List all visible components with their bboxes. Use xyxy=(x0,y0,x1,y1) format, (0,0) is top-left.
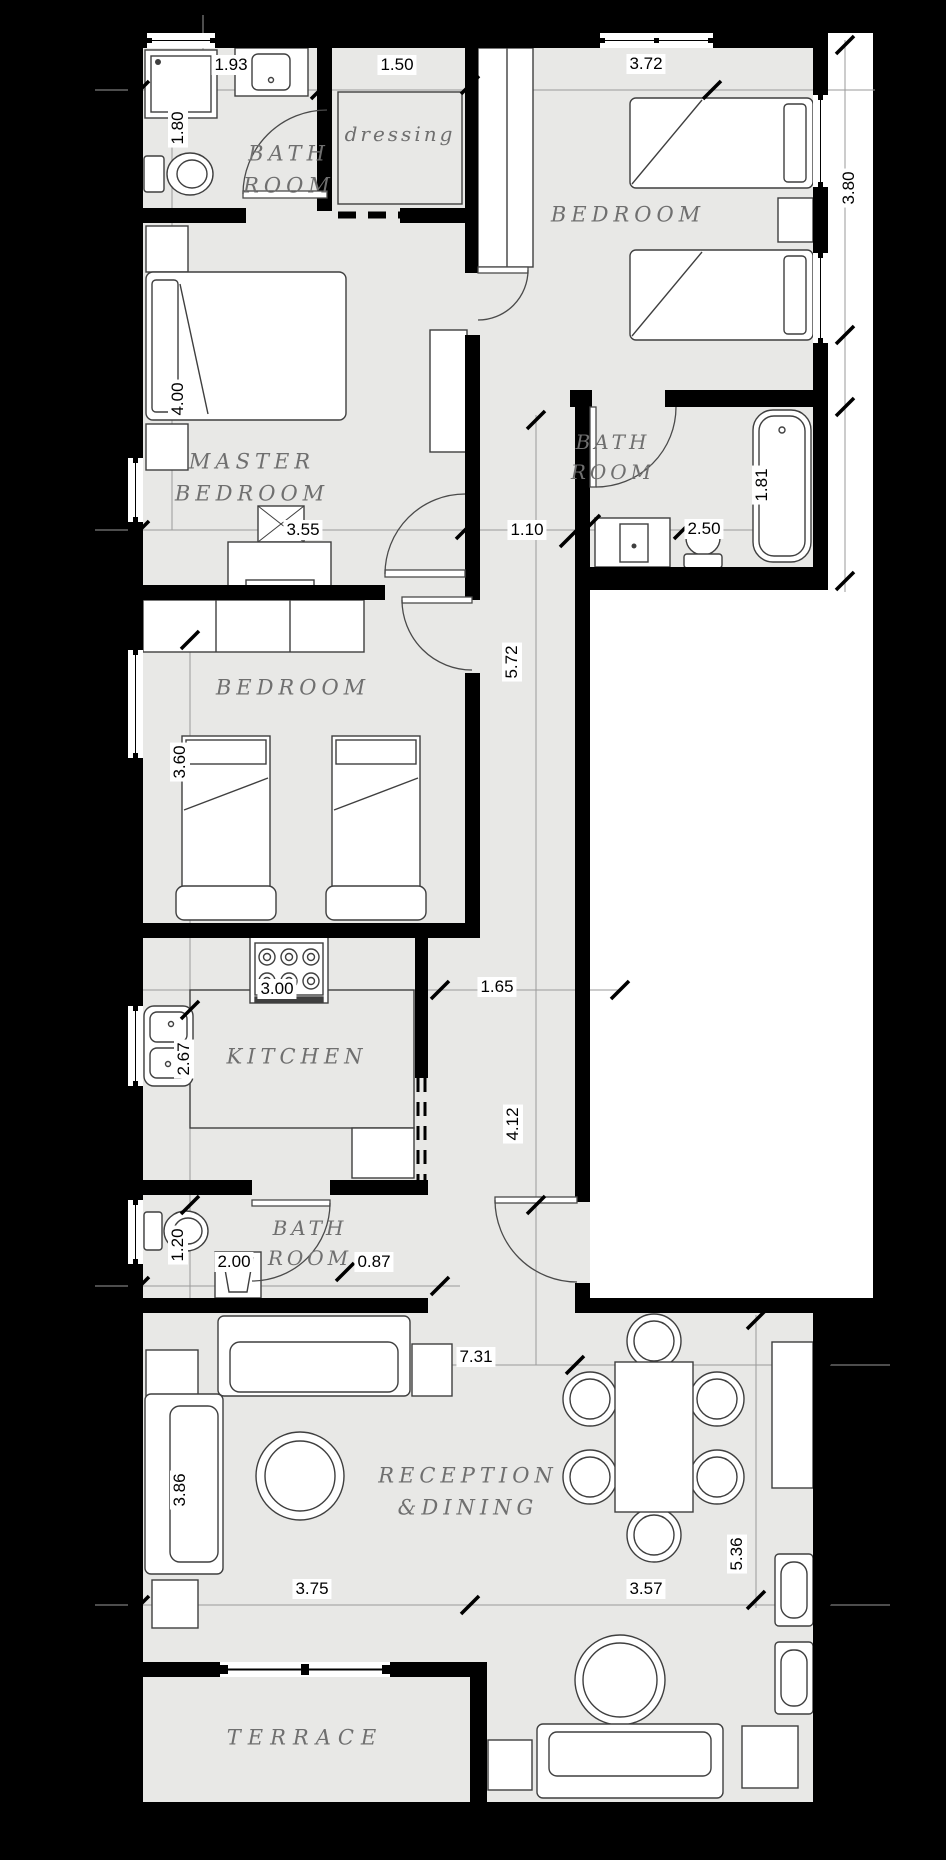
vanity-sink xyxy=(595,518,670,567)
room-label-master-bedroom: MASTERBEDROOM xyxy=(175,447,329,510)
room-label-reception: RECEPTION&DINING xyxy=(378,1461,558,1524)
window xyxy=(128,1006,143,1086)
room-label-bedroom-top: BEDROOM xyxy=(551,199,705,231)
room-label-bath-top: BATHROOM xyxy=(243,139,335,202)
terrace-railing xyxy=(220,1662,390,1677)
room-label-terrace: TERRACE xyxy=(227,1722,384,1754)
dim-dressing-width: 1.50 xyxy=(377,55,416,75)
dim-bath-lower-height: 1.20 xyxy=(168,1225,188,1264)
dim-sofa-length: 3.86 xyxy=(170,1470,190,1509)
armchair-right-1 xyxy=(775,1554,813,1626)
corner-table xyxy=(742,1726,798,1788)
dresser xyxy=(228,542,331,586)
room-label-bath-right: BATHROOM xyxy=(571,427,655,487)
dim-hall-width: 1.10 xyxy=(507,520,546,540)
floor-plan-canvas: BATHROOM dressing BEDROOM MASTERBEDROOM … xyxy=(0,0,946,1860)
window xyxy=(813,95,828,187)
dim-bedroom-top-height: 3.80 xyxy=(839,168,859,207)
dim-reception-right-height: 5.36 xyxy=(727,1534,747,1573)
tv-unit xyxy=(430,330,467,452)
dim-master-width: 3.55 xyxy=(283,520,322,540)
armchair-right-2 xyxy=(775,1642,813,1714)
dim-bath-lower-door: 0.87 xyxy=(354,1252,393,1272)
dim-bath-top-height: 1.80 xyxy=(168,108,188,147)
window xyxy=(813,253,828,343)
room-label-bath-lower: BATHROOM xyxy=(268,1213,352,1273)
floor-plan-drawing xyxy=(0,0,946,1860)
room-label-kitchen: KITCHEN xyxy=(226,1041,367,1073)
dim-bedroom-mid-height: 3.60 xyxy=(170,742,190,781)
dim-bath-lower-width: 2.00 xyxy=(214,1252,253,1272)
room-label-bedroom-mid: BEDROOM xyxy=(216,672,370,704)
side-table xyxy=(412,1344,452,1396)
side-table xyxy=(488,1740,532,1790)
fridge xyxy=(352,1128,414,1178)
room-label-dressing: dressing xyxy=(345,119,456,149)
side-table xyxy=(146,1350,198,1398)
dim-tub-length: 1.81 xyxy=(752,465,772,504)
dim-bath-right-width: 2.50 xyxy=(684,519,723,539)
dim-hall-lower-width: 1.65 xyxy=(477,977,516,997)
bed-single-1 xyxy=(630,98,813,188)
cabinet xyxy=(772,1342,813,1488)
dim-reception-left-width: 3.75 xyxy=(292,1579,331,1599)
side-table xyxy=(152,1580,198,1628)
coffee-table xyxy=(256,1432,344,1520)
bed-single-4 xyxy=(326,736,426,920)
dim-kitchen-width: 3.00 xyxy=(257,979,296,999)
dim-reception-right-width: 3.57 xyxy=(626,1579,665,1599)
nightstand xyxy=(146,226,188,272)
window xyxy=(600,33,713,48)
bed-single-2 xyxy=(630,250,813,340)
dim-bedroom-top-width: 3.72 xyxy=(626,54,665,74)
dining-table xyxy=(615,1362,693,1512)
sofa-top xyxy=(218,1316,410,1396)
dim-reception-width: 7.31 xyxy=(456,1347,495,1367)
dim-master-height: 4.00 xyxy=(168,379,188,418)
nightstand xyxy=(778,198,813,242)
window xyxy=(128,650,143,758)
window xyxy=(128,1200,143,1264)
round-table xyxy=(575,1635,665,1725)
sofa-bottom xyxy=(537,1724,723,1798)
window xyxy=(147,33,215,48)
window xyxy=(128,458,143,522)
wardrobe-mid-bedroom xyxy=(143,600,364,652)
dim-hall-length: 5.72 xyxy=(502,642,522,681)
dim-bath-top-width: 1.93 xyxy=(211,55,250,75)
wardrobe-top-bedroom xyxy=(478,48,533,267)
dim-hall-lower-length: 4.12 xyxy=(503,1104,523,1143)
dim-kitchen-sink-height: 2.67 xyxy=(174,1039,194,1078)
toilet xyxy=(144,153,213,195)
bed-single-3 xyxy=(176,736,276,920)
